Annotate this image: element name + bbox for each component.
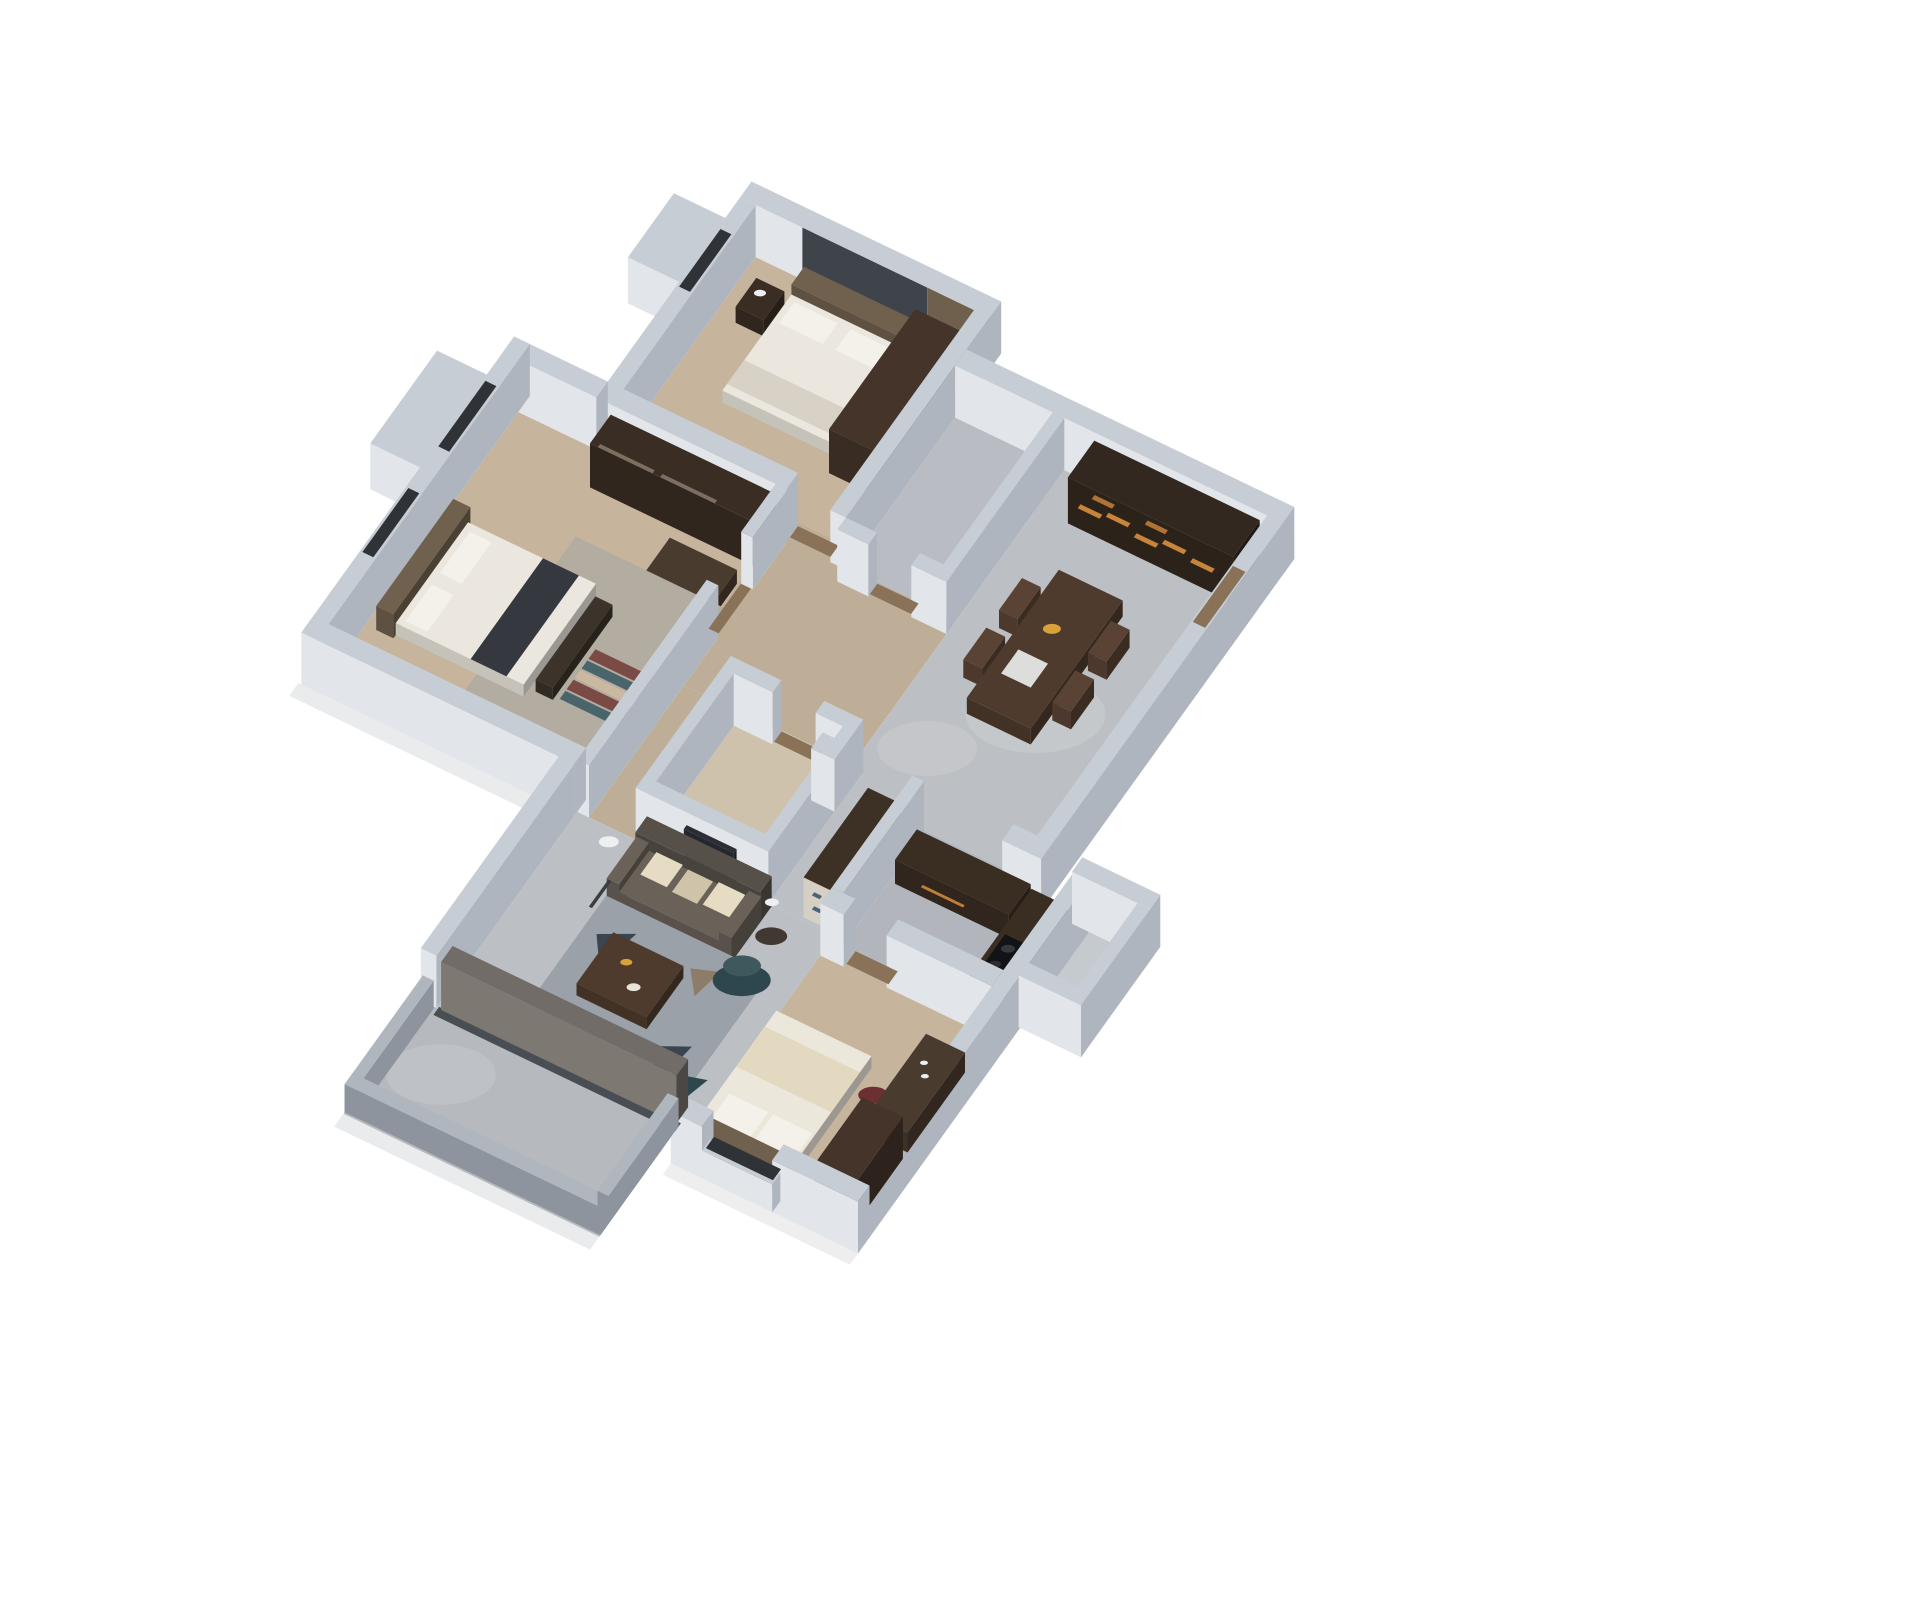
- coffee-decor-2: [627, 983, 641, 991]
- coffee-decor-1: [620, 959, 632, 966]
- side-table-lamp: [765, 898, 779, 906]
- armchair-cushion: [723, 955, 761, 976]
- fruit-bowl: [1043, 624, 1061, 634]
- desk-cup-1: [920, 1061, 928, 1065]
- floor-lamp-shade: [599, 836, 619, 847]
- floor-sheen-4: [386, 1044, 496, 1105]
- wall-dining-south-a: [811, 732, 846, 811]
- floorplan-render: [0, 0, 1920, 1617]
- desk-cup-2: [921, 1074, 929, 1078]
- wall-bedroom3-north-a: [820, 888, 855, 967]
- bedroom2-lamp: [754, 290, 766, 297]
- pot-1: [1001, 945, 1015, 953]
- floorplan-svg: [0, 0, 1920, 1617]
- floor-sheen-2: [877, 721, 977, 776]
- side-table: [755, 927, 787, 945]
